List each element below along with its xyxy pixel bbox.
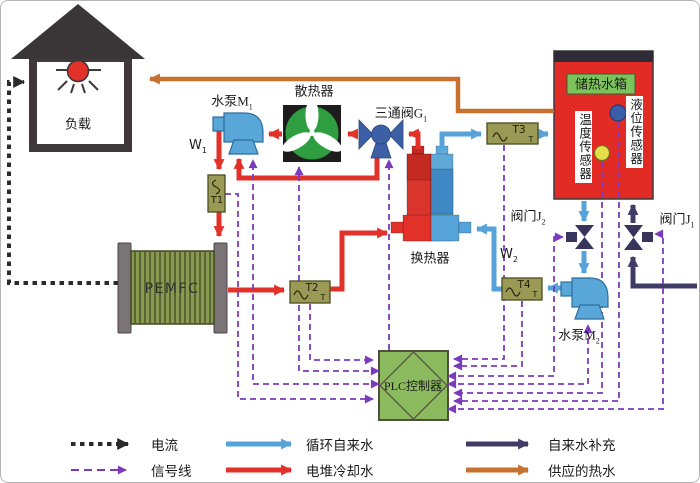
pemfc-label: PEMFC <box>145 282 200 296</box>
hx-hot-inlet-nub <box>391 222 403 233</box>
signal-t2-to-plc <box>310 304 373 360</box>
pump-m2-label: 水泵M2 <box>558 329 600 346</box>
pipe-supply-to-valve-j1 <box>633 257 697 286</box>
legend-tapwater-label: 循环自来水 <box>306 434 374 454</box>
w2-label: W2 <box>500 248 518 264</box>
radiator <box>279 99 344 162</box>
tank-lid <box>554 51 653 62</box>
legend-coolant-label: 电堆冷却水 <box>306 460 374 480</box>
hx-cold-bottom <box>431 215 459 241</box>
diagram-canvas: 负载 水泵M1 散热器 三通阀G1 W1 储热水箱 温度传感器 液位传感器 阀门… <box>0 0 700 483</box>
pipe-t2-to-hx <box>330 233 387 289</box>
valve-j1-label: 阀门J1 <box>659 213 694 230</box>
three-way-valve-label: 三通阀G1 <box>375 107 427 124</box>
level-sensor-dot <box>610 105 626 121</box>
valve-j1 <box>624 225 653 250</box>
pipe-t4-to-hx <box>477 229 502 289</box>
t1-label: T1 <box>211 196 223 206</box>
radiator-label: 散热器 <box>294 85 333 98</box>
house-roof <box>11 4 145 59</box>
t4-sub-label: T <box>533 291 538 299</box>
hx-hot-upper <box>407 154 431 180</box>
plc-label: PLC控制器 <box>384 380 442 392</box>
pump-m1-label: 水泵M1 <box>211 95 253 112</box>
t2-label: T2 <box>305 283 318 294</box>
legend-keys <box>71 444 528 470</box>
t3-label: T3 <box>512 125 525 136</box>
pump-m1-body <box>224 113 263 142</box>
t4-label: T4 <box>517 280 530 291</box>
signal-plc-to-pump1 <box>253 160 379 384</box>
temperature-sensor-dot <box>595 146 610 161</box>
heat-exchanger-label: 换热器 <box>410 252 449 265</box>
tank-label: 储热水箱 <box>575 78 627 91</box>
signal-plc-to-radiator <box>299 167 379 371</box>
signal-t4-to-plc <box>454 301 522 366</box>
three-way-valve-g1 <box>359 120 403 158</box>
legend-hotwater-label: 供应的热水 <box>548 460 616 480</box>
legend-makeup-label: 自来水补充 <box>548 434 616 454</box>
legend-current-label: 电流 <box>151 434 178 454</box>
pump-m2-base <box>575 305 604 319</box>
hx-cold-inlet-nub <box>459 222 471 233</box>
pemfc-endplate-left <box>118 243 131 333</box>
system-diagram <box>1 1 700 483</box>
level-sensor-label: 液位传感器 <box>626 96 643 168</box>
valve-j2 <box>566 225 594 249</box>
pump-m2 <box>561 278 608 319</box>
pump-m2-body <box>572 278 608 307</box>
valve-j2-label: 阀门J2 <box>510 210 545 227</box>
t2-sub-label: T <box>321 294 326 302</box>
pemfc-endplate-right <box>214 243 227 333</box>
load-label: 负载 <box>65 118 91 131</box>
heat-exchanger <box>391 146 471 241</box>
hx-hot-bottom <box>403 215 431 241</box>
hx-cold-mid <box>431 169 453 214</box>
legend-signal-label: 信号线 <box>151 460 192 480</box>
temperature-sensor-label: 温度传感器 <box>575 111 592 183</box>
pump-m1-base <box>229 140 258 154</box>
t3-sub-label: T <box>529 136 534 144</box>
lamp-icon <box>68 61 89 82</box>
w1-label: W1 <box>189 139 207 155</box>
